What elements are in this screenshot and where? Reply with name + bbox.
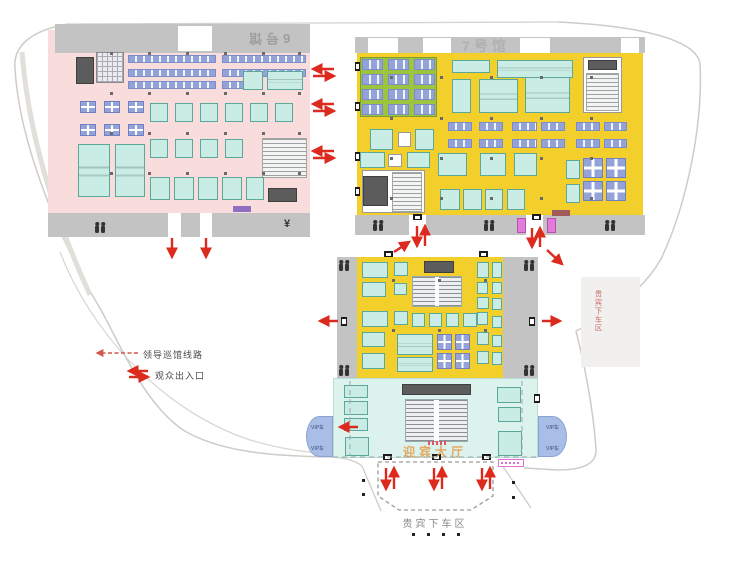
booth <box>588 60 617 70</box>
restroom-icon <box>339 260 349 271</box>
structural-column <box>440 157 443 160</box>
booth <box>566 160 580 179</box>
booth <box>429 313 442 327</box>
booth <box>128 124 144 136</box>
structural-column <box>224 132 227 135</box>
booth <box>480 153 506 176</box>
pillar-dot <box>412 533 415 536</box>
booth <box>525 77 570 113</box>
structural-column <box>262 132 265 135</box>
structural-column <box>440 117 443 120</box>
booth <box>541 122 565 131</box>
booth <box>440 189 460 210</box>
structural-column <box>110 172 113 175</box>
booth <box>392 172 422 212</box>
booth <box>225 103 243 122</box>
dropoff-area-label: 贵宾下车区 <box>385 515 485 530</box>
booth <box>128 69 216 77</box>
booth <box>477 297 489 309</box>
door-gap <box>520 38 550 53</box>
restroom-icon <box>339 365 349 376</box>
structural-column <box>440 197 443 200</box>
booth <box>541 139 565 148</box>
booth <box>362 353 385 369</box>
booth <box>583 181 603 201</box>
structural-column <box>262 92 265 95</box>
booth <box>78 144 110 197</box>
booth <box>150 103 168 122</box>
pillar-dot <box>442 533 445 536</box>
door-marker <box>384 251 393 257</box>
structural-column <box>438 329 441 332</box>
door-gap <box>423 38 451 53</box>
door-marker <box>534 394 540 403</box>
booth <box>360 152 385 168</box>
pillar-dot <box>427 533 430 536</box>
vip-lane-label: VIP车 <box>546 424 559 431</box>
booth <box>446 313 459 327</box>
booth <box>394 311 408 325</box>
booth <box>407 152 430 168</box>
structural-column <box>298 172 301 175</box>
booth <box>246 177 264 200</box>
booth <box>479 122 503 131</box>
structural-column <box>110 52 113 55</box>
booth <box>552 210 570 216</box>
booth <box>414 74 435 85</box>
booth <box>492 316 502 328</box>
booth <box>362 104 383 115</box>
booth <box>397 334 433 355</box>
booth <box>233 206 251 212</box>
booth <box>250 103 268 122</box>
booth <box>268 188 297 202</box>
booth <box>150 177 170 200</box>
door-marker <box>532 214 541 220</box>
booth <box>200 139 218 158</box>
booth <box>388 154 402 167</box>
booth <box>414 59 435 70</box>
booth <box>492 262 502 278</box>
entrance-arrow <box>394 242 409 252</box>
booth <box>455 334 470 350</box>
booth <box>485 189 503 210</box>
exhibition-floor-plan: 6号馆 7号馆 迎宾大厅 贵宾下车区 贵宾下车区 ¥ VIP车 VIP车 VIP… <box>0 0 750 563</box>
structural-column <box>186 132 189 135</box>
corridor-band <box>337 257 357 378</box>
structural-column <box>390 197 393 200</box>
booth <box>397 357 433 372</box>
structural-column <box>590 117 593 120</box>
structural-column <box>392 279 395 282</box>
door-marker <box>479 251 488 257</box>
restroom-icon <box>524 365 534 376</box>
booth <box>463 189 482 210</box>
booth <box>477 312 488 325</box>
booth <box>174 177 194 200</box>
booth <box>398 132 411 147</box>
door-marker <box>383 454 392 460</box>
structural-column <box>590 197 593 200</box>
booth <box>498 407 521 422</box>
booth <box>463 313 477 327</box>
booth <box>76 57 94 84</box>
booth <box>362 311 388 327</box>
booth <box>222 177 242 200</box>
booth <box>363 176 388 206</box>
booth <box>576 122 600 131</box>
structural-column <box>490 76 493 79</box>
structural-column <box>440 76 443 79</box>
booth <box>477 351 489 364</box>
structural-column <box>484 279 487 282</box>
dropoff-dashed-zone <box>378 462 493 510</box>
structural-column <box>540 76 543 79</box>
door-marker <box>529 317 535 326</box>
pillar-dot <box>457 533 460 536</box>
booth <box>479 79 518 113</box>
restroom-icon <box>484 220 494 231</box>
door-gap <box>168 213 181 237</box>
booth <box>576 139 600 148</box>
booth <box>128 55 216 63</box>
structural-column <box>148 92 151 95</box>
pillar-dot <box>512 496 515 499</box>
booth <box>80 124 96 136</box>
booth <box>415 129 434 150</box>
booth <box>405 399 468 442</box>
corridor-band <box>355 215 645 235</box>
booth <box>344 401 368 415</box>
structural-column <box>590 76 593 79</box>
booth <box>477 332 489 345</box>
door-marker <box>413 214 422 220</box>
structural-column <box>490 197 493 200</box>
booth <box>362 74 383 85</box>
legend-route-label: 领导巡馆线路 <box>143 348 203 361</box>
booth <box>362 59 383 70</box>
booth <box>222 55 306 63</box>
booth <box>267 71 303 90</box>
structural-column <box>390 157 393 160</box>
booth <box>394 283 407 295</box>
booth <box>498 431 522 456</box>
booth <box>452 79 471 113</box>
door-gap <box>368 38 398 53</box>
booth <box>370 129 393 150</box>
booth <box>362 332 385 347</box>
entrance-arrow <box>547 250 562 264</box>
structural-column <box>148 132 151 135</box>
structural-column <box>298 132 301 135</box>
booth <box>362 262 388 278</box>
door-marker <box>355 152 360 161</box>
roadside-vip-label: 贵宾下车区 <box>593 290 604 354</box>
yen-icon: ¥ <box>284 218 290 230</box>
booth <box>412 276 462 307</box>
booth <box>115 144 145 197</box>
booth <box>424 261 454 273</box>
pillar-dot <box>362 493 365 496</box>
booth <box>497 60 573 78</box>
structural-column <box>262 52 265 55</box>
booth <box>388 104 409 115</box>
booth <box>492 335 502 347</box>
booth <box>243 71 263 90</box>
restroom-icon <box>95 222 105 233</box>
structural-column <box>224 172 227 175</box>
structural-column <box>438 279 441 282</box>
booth <box>497 387 521 403</box>
structural-column <box>110 132 113 135</box>
vip-lane-label: VIP车 <box>311 424 324 431</box>
hall6-label: 6号馆 <box>245 30 290 49</box>
booth <box>96 52 124 83</box>
door-gap <box>621 38 639 53</box>
door-marker <box>482 454 491 460</box>
structural-column <box>540 117 543 120</box>
structural-column <box>186 92 189 95</box>
booth <box>479 139 503 148</box>
booth <box>566 184 580 203</box>
booth <box>498 459 524 467</box>
structural-column <box>540 197 543 200</box>
structural-column <box>490 117 493 120</box>
booth <box>275 103 293 122</box>
booth <box>604 122 627 131</box>
restroom-icon <box>373 220 383 231</box>
structural-column <box>392 329 395 332</box>
structural-column <box>224 92 227 95</box>
structural-column <box>262 172 265 175</box>
booth <box>412 313 425 327</box>
door-gap <box>200 213 212 237</box>
booth <box>414 104 435 115</box>
booth <box>492 282 502 294</box>
booth <box>388 59 409 70</box>
booth <box>492 352 502 365</box>
booth <box>606 181 626 201</box>
booth <box>492 298 502 310</box>
booth <box>200 103 218 122</box>
booth <box>606 158 626 178</box>
booth <box>455 353 470 369</box>
restroom-icon <box>605 220 615 231</box>
welcome-hall-label: 迎宾大厅 <box>403 443 467 460</box>
booth <box>448 139 472 148</box>
booth <box>414 89 435 100</box>
structural-column <box>490 157 493 160</box>
booth <box>345 437 369 456</box>
structural-column <box>186 52 189 55</box>
structural-column <box>590 157 593 160</box>
booth <box>104 101 120 113</box>
structural-column <box>540 157 543 160</box>
booth <box>402 384 471 395</box>
door-marker <box>341 317 347 326</box>
pillar-dot <box>512 481 515 484</box>
structural-column <box>148 52 151 55</box>
booth <box>362 282 386 297</box>
booth <box>175 103 193 122</box>
vip-lane-label: VIP车 <box>311 445 324 452</box>
booth <box>128 81 216 89</box>
booth <box>394 262 408 276</box>
door-marker <box>355 187 360 196</box>
structural-column <box>148 172 151 175</box>
structural-column <box>390 117 393 120</box>
booth <box>388 89 409 100</box>
structural-column <box>110 92 113 95</box>
booth <box>344 385 368 398</box>
booth <box>512 139 537 148</box>
door-gap <box>178 26 212 51</box>
booth <box>512 122 537 131</box>
booth <box>477 282 488 294</box>
booth <box>344 418 368 431</box>
structural-column <box>484 329 487 332</box>
door-marker <box>355 62 360 71</box>
structural-column <box>186 172 189 175</box>
booth <box>547 218 556 233</box>
structural-column <box>224 52 227 55</box>
booth <box>128 101 144 113</box>
booth <box>225 139 243 158</box>
hall7-label: 7号馆 <box>462 36 510 56</box>
booth <box>604 139 627 148</box>
booth <box>437 353 452 369</box>
booth <box>507 189 525 210</box>
booth <box>362 89 383 100</box>
booth <box>150 139 168 158</box>
booth <box>448 122 472 131</box>
structural-column <box>298 52 301 55</box>
structural-column <box>390 76 393 79</box>
restroom-icon <box>524 260 534 271</box>
booth <box>80 101 96 113</box>
door-marker <box>355 102 360 111</box>
booth <box>514 153 537 176</box>
booth <box>452 60 490 73</box>
pillar-dot <box>362 479 365 482</box>
vip-lane-label: VIP车 <box>546 445 559 452</box>
legend-entrance-label: 观众出入口 <box>155 369 205 382</box>
booth <box>477 262 489 278</box>
booth <box>437 334 452 350</box>
booth <box>175 139 193 158</box>
booth <box>517 218 526 233</box>
booth <box>583 158 603 178</box>
structural-column <box>298 92 301 95</box>
booth <box>198 177 218 200</box>
vip-gray-box <box>581 277 640 367</box>
